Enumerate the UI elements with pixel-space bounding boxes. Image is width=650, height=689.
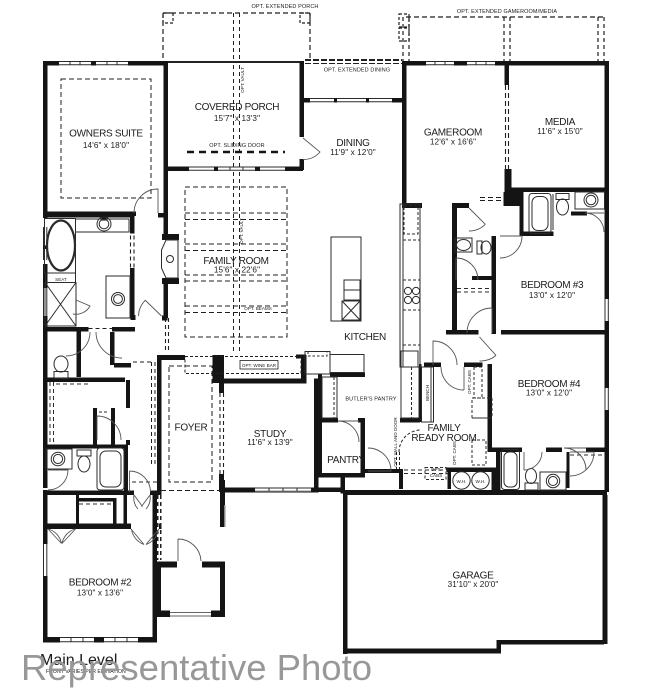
svg-text:Representative Photo: Representative Photo	[21, 647, 372, 688]
svg-text:OPT. VAULT: OPT. VAULT	[240, 67, 245, 93]
svg-text:OPT. EXTENDED DINING: OPT. EXTENDED DINING	[324, 68, 390, 74]
svg-text:11'6" x 15'0": 11'6" x 15'0"	[537, 127, 583, 136]
svg-text:15'7" x 13'3": 15'7" x 13'3"	[214, 114, 260, 123]
svg-text:31'10" x 20'0": 31'10" x 20'0"	[448, 580, 499, 589]
svg-text:FOYER: FOYER	[175, 423, 208, 434]
svg-text:W.H.: W.H.	[476, 479, 486, 484]
svg-text:13'0" x 12'0": 13'0" x 12'0"	[529, 291, 575, 300]
svg-text:OPT. CABS: OPT. CABS	[452, 441, 457, 465]
svg-text:14'6" x 18'0": 14'6" x 18'0"	[83, 141, 129, 150]
svg-text:OPT. VAULT: OPT. VAULT	[239, 218, 244, 244]
svg-text:OPT. WALL AND DOOR: OPT. WALL AND DOOR	[393, 417, 398, 467]
svg-text:PANTRY: PANTRY	[327, 455, 365, 466]
svg-text:BEDROOM #3: BEDROOM #3	[521, 280, 584, 291]
svg-text:KITCHEN: KITCHEN	[344, 332, 386, 343]
svg-text:OPT. WINE BAR: OPT. WINE BAR	[242, 363, 277, 368]
svg-text:12'6" x 16'6": 12'6" x 16'6"	[430, 138, 476, 147]
svg-text:CABS: CABS	[430, 473, 443, 478]
svg-text:SEAT: SEAT	[55, 277, 67, 282]
svg-text:OWNERS SUITE: OWNERS SUITE	[69, 129, 143, 140]
svg-text:OPT. BEAMS: OPT. BEAMS	[244, 306, 272, 311]
svg-text:15'6" x 22'6": 15'6" x 22'6"	[214, 266, 260, 275]
svg-text:BEDROOM #2: BEDROOM #2	[69, 578, 132, 589]
svg-text:OPT. SLIDING DOOR: OPT. SLIDING DOOR	[209, 143, 265, 149]
svg-text:BENCH: BENCH	[425, 385, 430, 401]
svg-text:READY ROOM: READY ROOM	[411, 433, 476, 444]
svg-text:OPT. CABS: OPT. CABS	[467, 370, 472, 394]
svg-text:OPT. EXTENDED PORCH: OPT. EXTENDED PORCH	[252, 4, 319, 10]
svg-text:13'0" x 13'6": 13'0" x 13'6"	[77, 589, 123, 598]
svg-text:OPT. EXTENDED GAMEROOM/MEDIA: OPT. EXTENDED GAMEROOM/MEDIA	[457, 9, 558, 15]
svg-text:13'0" x 12'0": 13'0" x 12'0"	[526, 389, 572, 398]
svg-text:BUTLER'S PANTRY: BUTLER'S PANTRY	[345, 397, 396, 403]
svg-text:11'6" x 13'9": 11'6" x 13'9"	[247, 438, 293, 447]
svg-text:OPT.: OPT.	[431, 467, 441, 472]
svg-text:W.H.: W.H.	[457, 479, 467, 484]
svg-text:COVERED PORCH: COVERED PORCH	[195, 102, 280, 113]
svg-text:11'9" x 12'0": 11'9" x 12'0"	[330, 148, 376, 157]
